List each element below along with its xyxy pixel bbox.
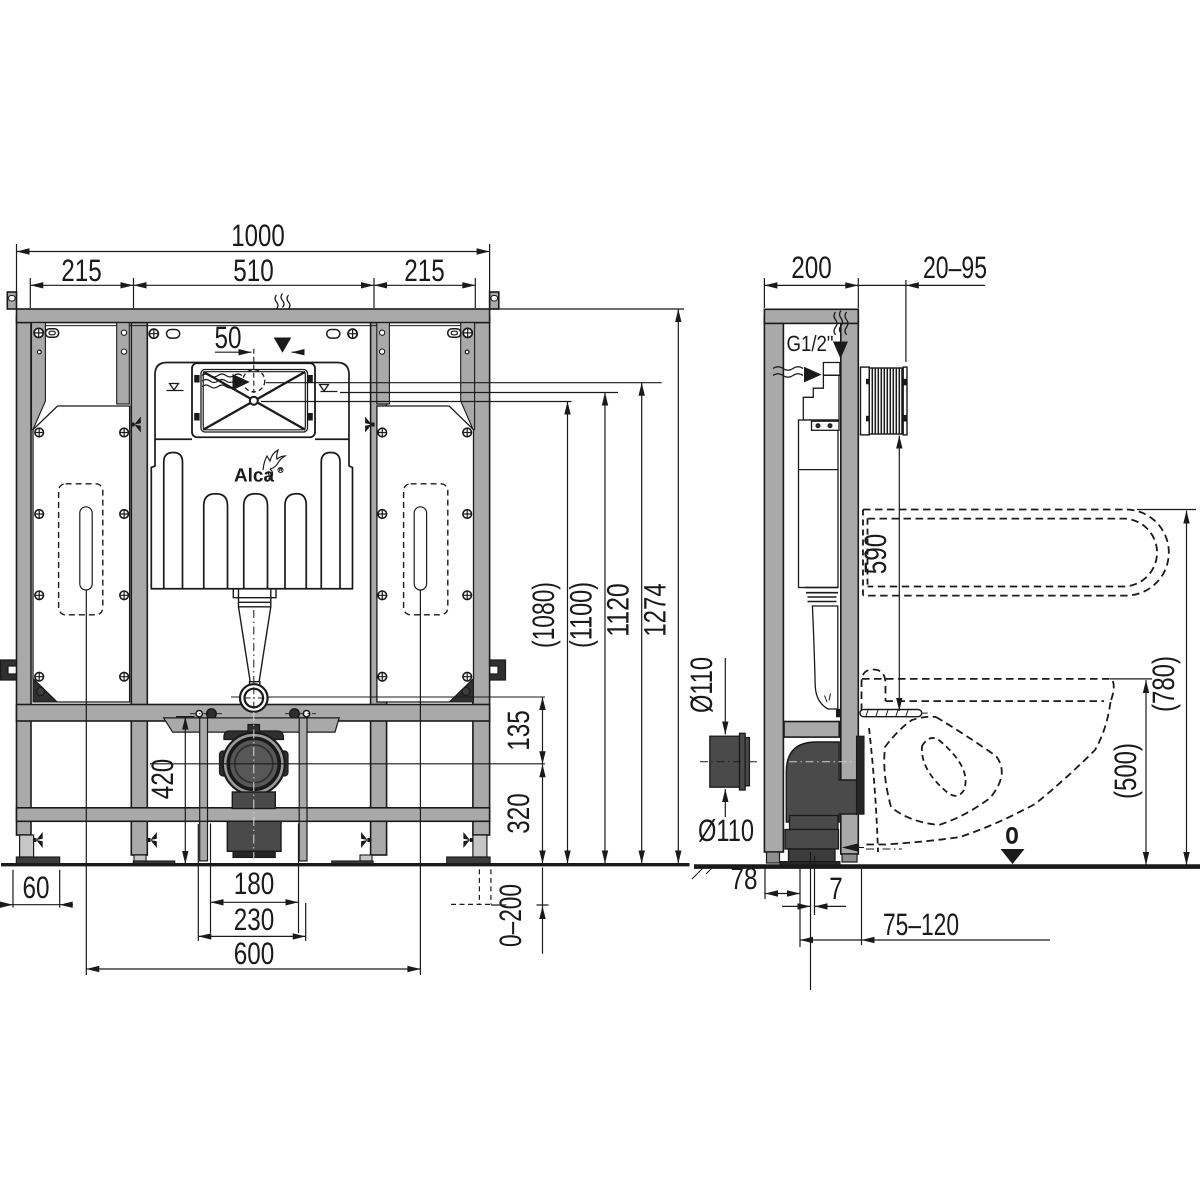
svg-text:0: 0 (1006, 823, 1018, 848)
svg-text:230: 230 (234, 902, 275, 937)
svg-text:75–120: 75–120 (883, 907, 959, 942)
svg-text:600: 600 (234, 936, 275, 971)
svg-text:60: 60 (23, 870, 50, 905)
svg-text:135: 135 (501, 710, 536, 751)
svg-text:Ø110: Ø110 (684, 657, 719, 713)
svg-text:1274: 1274 (638, 583, 673, 637)
svg-text:180: 180 (234, 866, 275, 901)
svg-text:0–200: 0–200 (493, 884, 528, 947)
svg-text:78: 78 (731, 861, 758, 896)
svg-text:1000: 1000 (231, 218, 285, 253)
svg-text:(1080): (1080) (526, 582, 561, 648)
svg-text:420: 420 (145, 759, 180, 800)
svg-text:320: 320 (501, 793, 536, 834)
svg-text:Alca: Alca (234, 466, 274, 487)
svg-text:215: 215 (404, 253, 445, 288)
svg-text:200: 200 (791, 250, 832, 285)
svg-text:510: 510 (233, 253, 274, 288)
svg-text:G1/2": G1/2" (787, 331, 834, 356)
svg-text:(500): (500) (1108, 743, 1143, 799)
svg-text:7: 7 (829, 871, 843, 906)
svg-text:1120: 1120 (601, 583, 636, 637)
svg-text:(780): (780) (1146, 656, 1181, 712)
svg-text:(1100): (1100) (564, 582, 599, 648)
svg-text:Ø110: Ø110 (698, 813, 754, 848)
svg-text:215: 215 (61, 253, 102, 288)
svg-text:50: 50 (215, 320, 242, 355)
svg-text:20–95: 20–95 (923, 250, 987, 285)
svg-text:590: 590 (858, 534, 893, 575)
